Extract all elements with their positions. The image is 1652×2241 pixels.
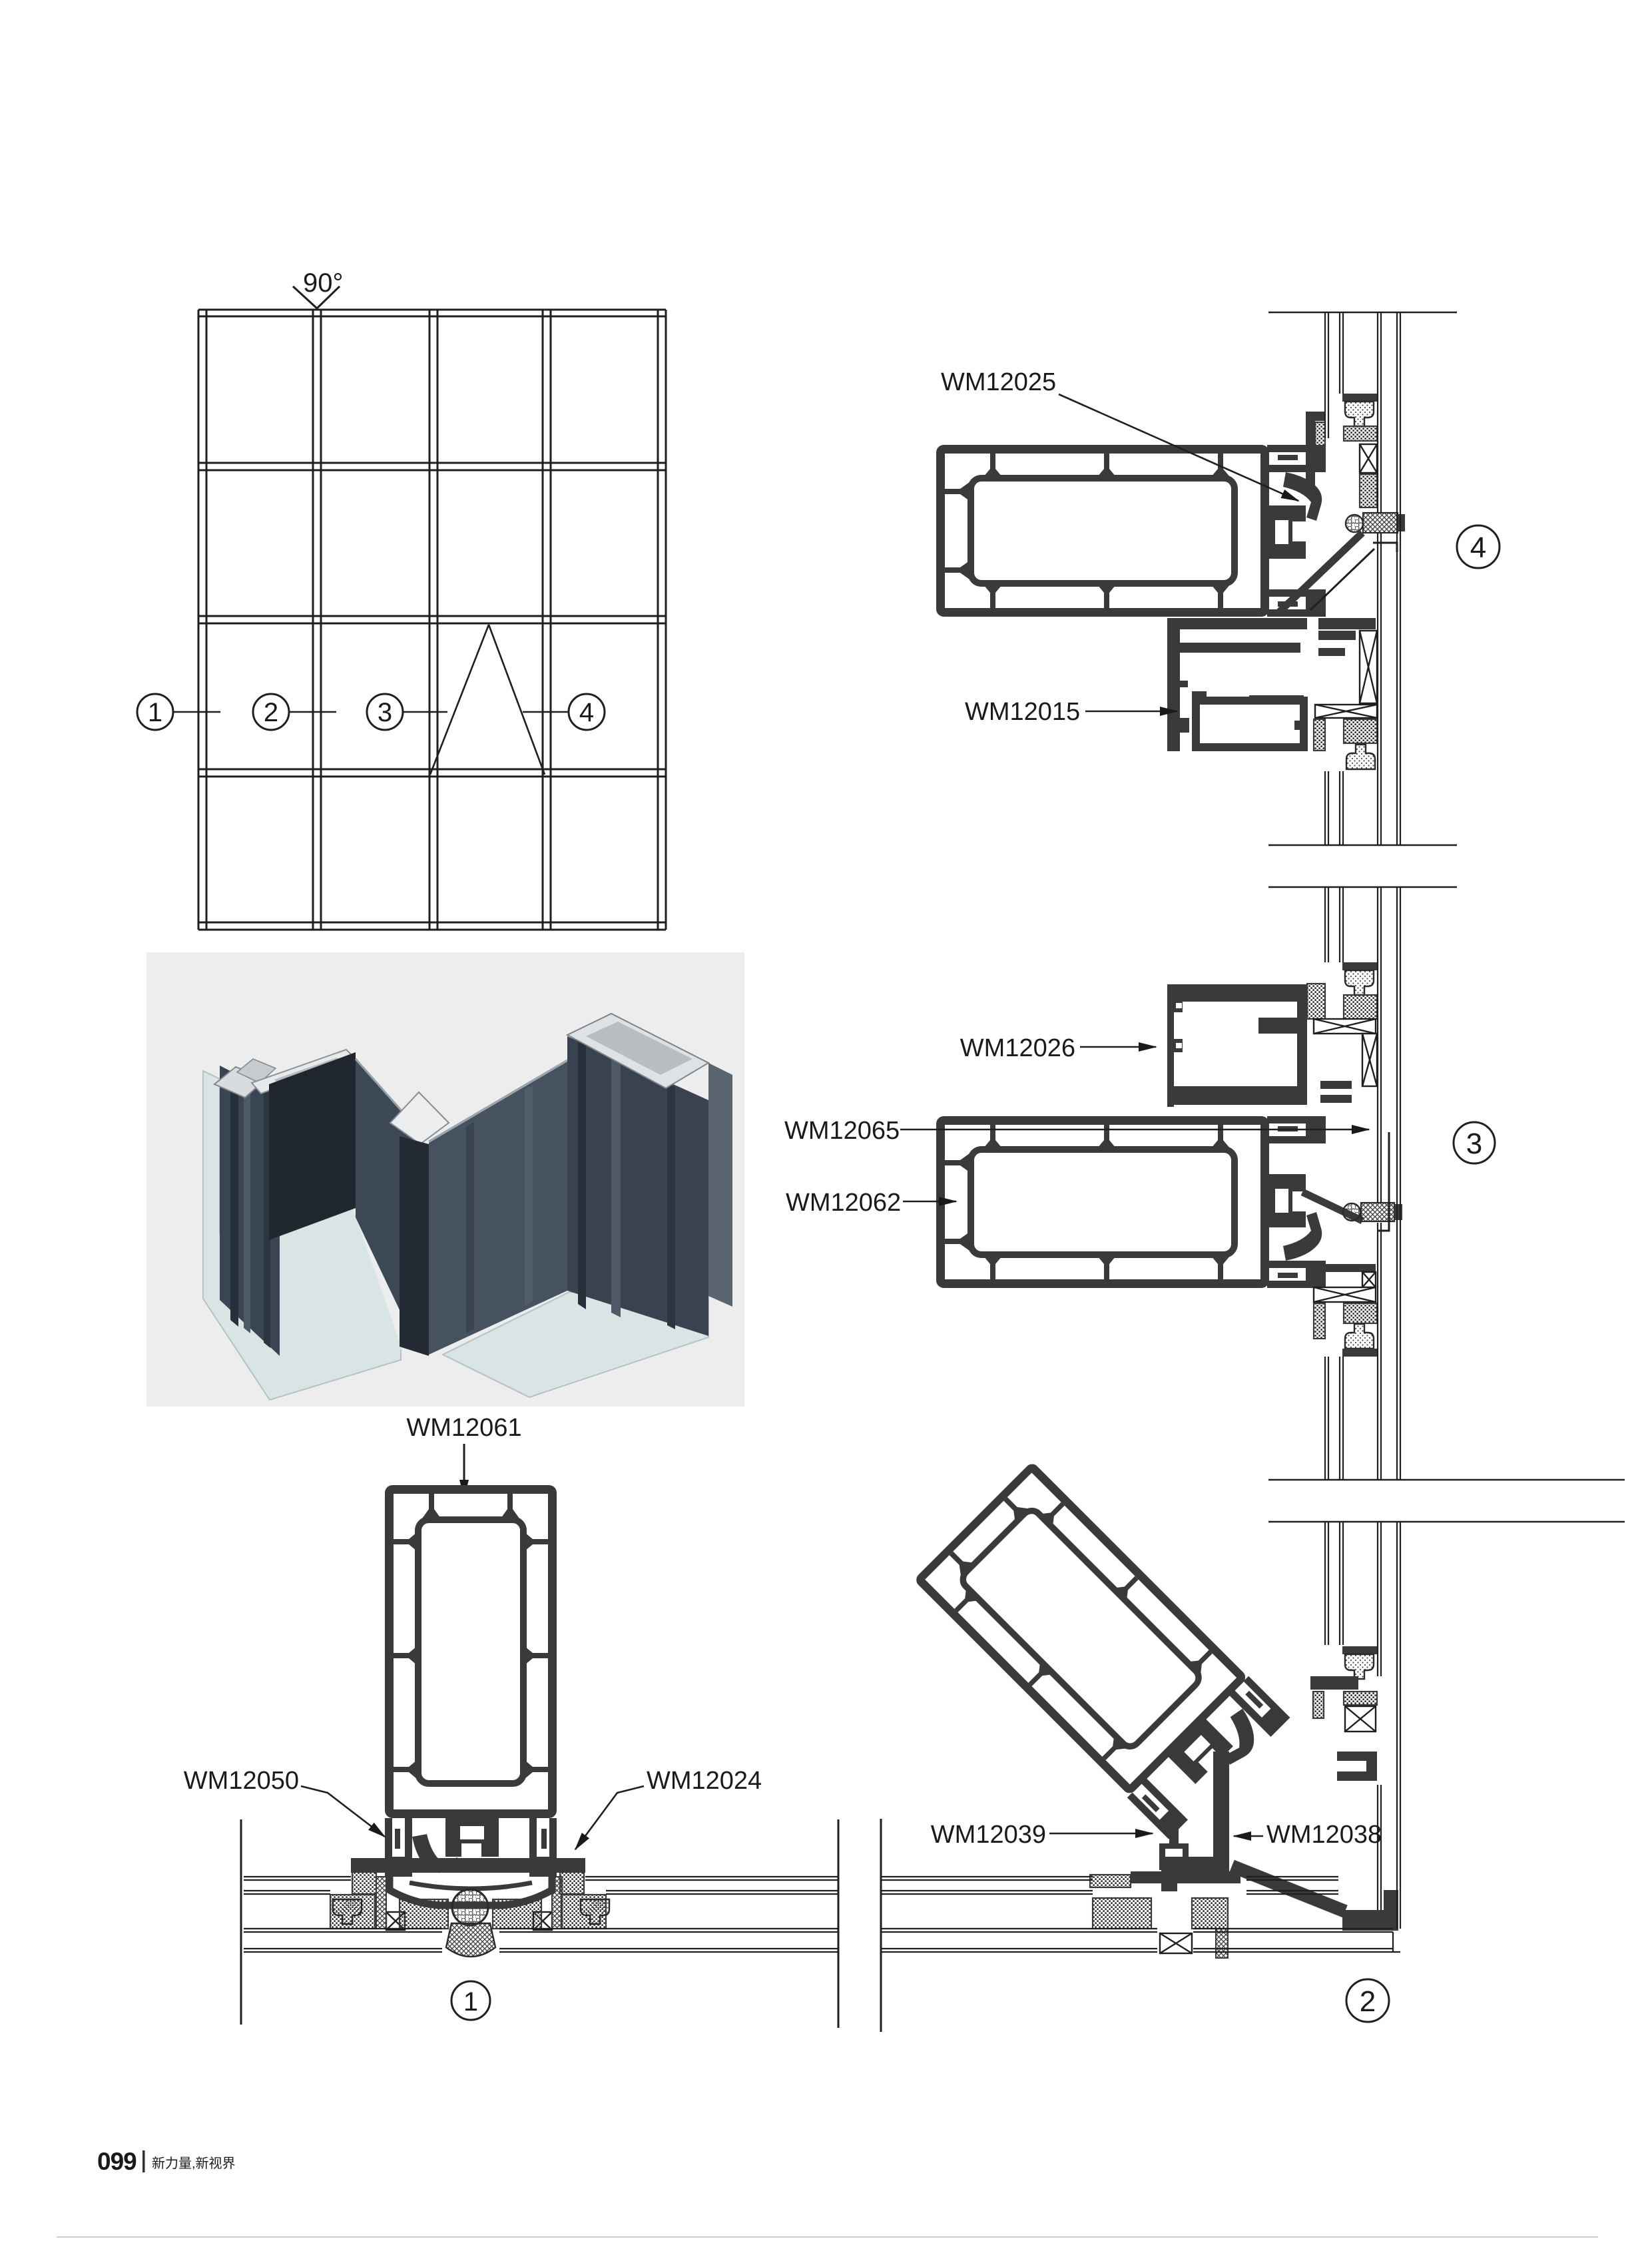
svg-text:WM12065: WM12065	[784, 1117, 900, 1145]
svg-text:WM12024: WM12024	[647, 1767, 762, 1795]
svg-text:2: 2	[1360, 1985, 1376, 2018]
svg-text:2: 2	[264, 698, 278, 727]
svg-text:新力量,新视界: 新力量,新视界	[152, 2156, 236, 2171]
svg-text:WM12050: WM12050	[184, 1767, 299, 1795]
svg-text:3: 3	[1466, 1127, 1482, 1160]
svg-text:4: 4	[579, 698, 594, 727]
svg-text:90°: 90°	[303, 268, 344, 298]
svg-text:WM12026: WM12026	[960, 1034, 1075, 1062]
svg-text:3: 3	[378, 698, 392, 727]
svg-text:WM12038: WM12038	[1266, 1821, 1382, 1849]
svg-text:1: 1	[148, 698, 162, 727]
svg-text:WM12015: WM12015	[965, 698, 1080, 726]
svg-text:WM12062: WM12062	[786, 1189, 901, 1217]
svg-text:WM12061: WM12061	[406, 1414, 521, 1442]
svg-text:WM12039: WM12039	[931, 1821, 1046, 1849]
svg-text:099: 099	[97, 2148, 137, 2175]
svg-text:WM12025: WM12025	[941, 368, 1056, 396]
svg-text:1: 1	[463, 1987, 478, 2017]
svg-text:4: 4	[1470, 531, 1486, 564]
